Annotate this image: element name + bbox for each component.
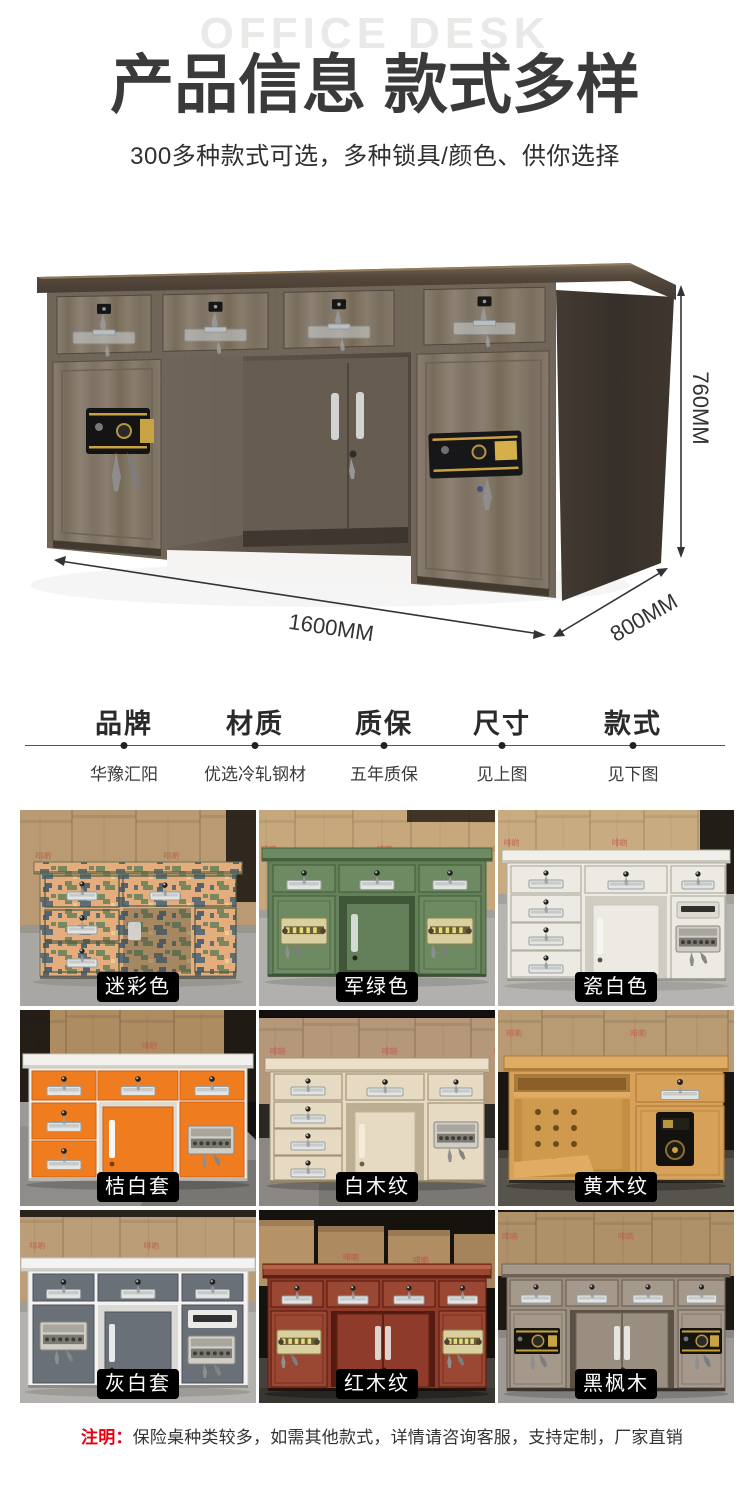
svg-text:啡啲: 啡啲 xyxy=(502,1231,518,1241)
svg-text:啡啲: 啡啲 xyxy=(142,1041,158,1051)
svg-text:啡啲: 啡啲 xyxy=(612,837,628,847)
svg-text:啡啲: 啡啲 xyxy=(382,1046,398,1056)
svg-text:啡啲: 啡啲 xyxy=(506,1028,522,1038)
svg-text:760MM: 760MM xyxy=(688,371,713,444)
svg-text:啡啲: 啡啲 xyxy=(494,1046,495,1056)
svg-text:800MM: 800MM xyxy=(606,588,682,646)
svg-text:啡啲: 啡啲 xyxy=(343,1252,359,1262)
svg-text:啡啲: 啡啲 xyxy=(143,1241,159,1251)
svg-text:啡啲: 啡啲 xyxy=(163,850,179,860)
svg-text:啡啲: 啡啲 xyxy=(270,1046,286,1056)
svg-text:啡啲: 啡啲 xyxy=(630,1028,646,1038)
svg-text:啡啲: 啡啲 xyxy=(504,837,520,847)
svg-text:啡啲: 啡啲 xyxy=(618,1231,634,1241)
svg-text:啡啲: 啡啲 xyxy=(35,850,51,860)
svg-text:1600MM: 1600MM xyxy=(287,609,375,646)
svg-text:啡啲: 啡啲 xyxy=(493,844,495,854)
svg-text:啡啲: 啡啲 xyxy=(29,1241,45,1251)
